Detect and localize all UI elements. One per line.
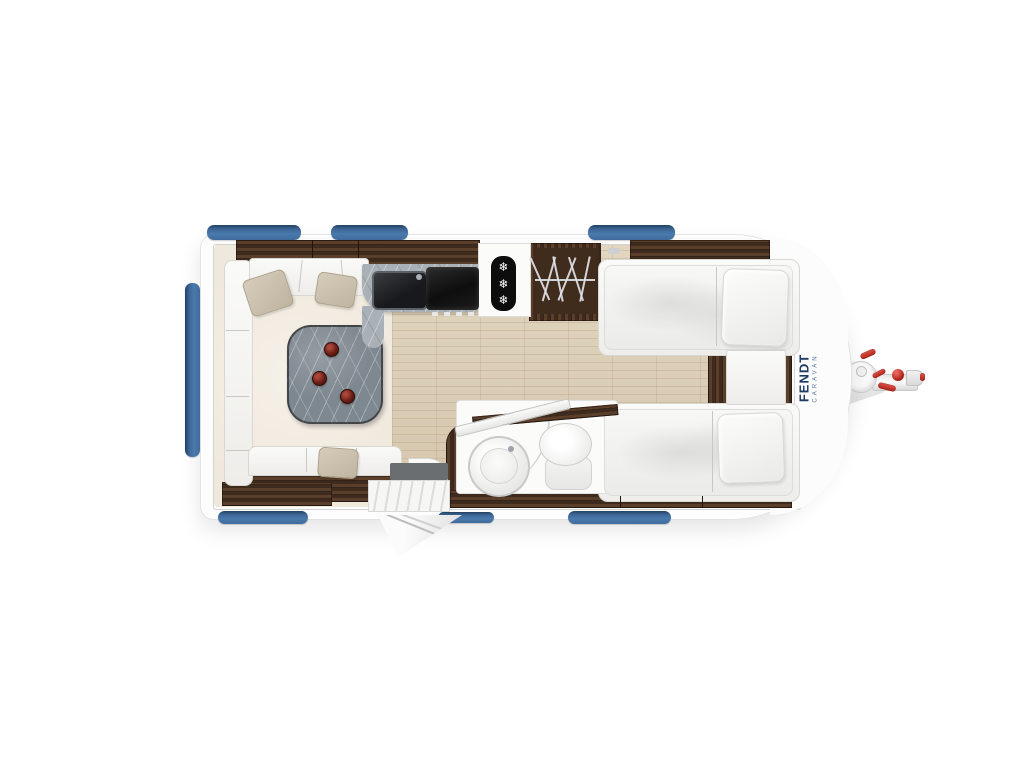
freezer-icon: ❄ ❄ ❄	[491, 256, 516, 311]
jockey-wheel-hub-icon	[856, 366, 867, 377]
nightstand-top	[726, 350, 786, 405]
brand-subtitle-text: CARAVAN	[813, 353, 819, 402]
entry-mat	[390, 463, 448, 480]
bathroom-sink-bowl	[480, 448, 518, 484]
window-bottom-lounge	[218, 511, 308, 524]
window-top-lounge	[207, 225, 301, 240]
cooktop-knob-1	[432, 312, 438, 316]
caravan-floorplan: ❄ ❄ ❄ FENDT CARAVAN	[0, 0, 1024, 768]
entry-step-sill	[368, 480, 450, 512]
cooktop-knob-3	[456, 312, 462, 316]
entry-door-open	[376, 515, 462, 557]
cooktop-knob-2	[444, 312, 450, 316]
cushion-pillow-2	[314, 271, 359, 309]
snowflake-icon: ❄	[498, 261, 508, 273]
coupling-tip-red	[920, 373, 925, 381]
kitchen-counter-extension	[362, 306, 384, 348]
cup-1	[324, 342, 339, 357]
cooktop-knob-4	[468, 312, 474, 316]
brand-name-text: FENDT	[797, 353, 812, 402]
toilet-lid	[539, 423, 592, 466]
cushion-pillow-3	[317, 447, 359, 480]
kitchen-faucet-icon	[416, 274, 422, 280]
cup-3	[340, 389, 355, 404]
roof-hatch-hinge	[608, 248, 620, 254]
cup-2	[312, 371, 327, 386]
bed-top-pillow	[721, 268, 790, 347]
snowflake-icon: ❄	[498, 278, 508, 290]
snowflake-icon: ❄	[498, 294, 508, 306]
bathroom-faucet-icon	[508, 446, 514, 452]
window-bottom-bed	[568, 511, 671, 524]
hitch-ball-red	[892, 369, 904, 381]
bed-bottom-pillow	[717, 412, 785, 484]
brand-logo: FENDT CARAVAN	[784, 334, 832, 422]
hitch-handle-red	[859, 348, 876, 360]
brand-logo-rotated: FENDT CARAVAN	[797, 353, 819, 402]
window-top-bed	[588, 225, 675, 240]
cooktop	[426, 267, 479, 310]
window-top-kitchen	[331, 225, 408, 240]
window-left-end	[185, 283, 200, 457]
